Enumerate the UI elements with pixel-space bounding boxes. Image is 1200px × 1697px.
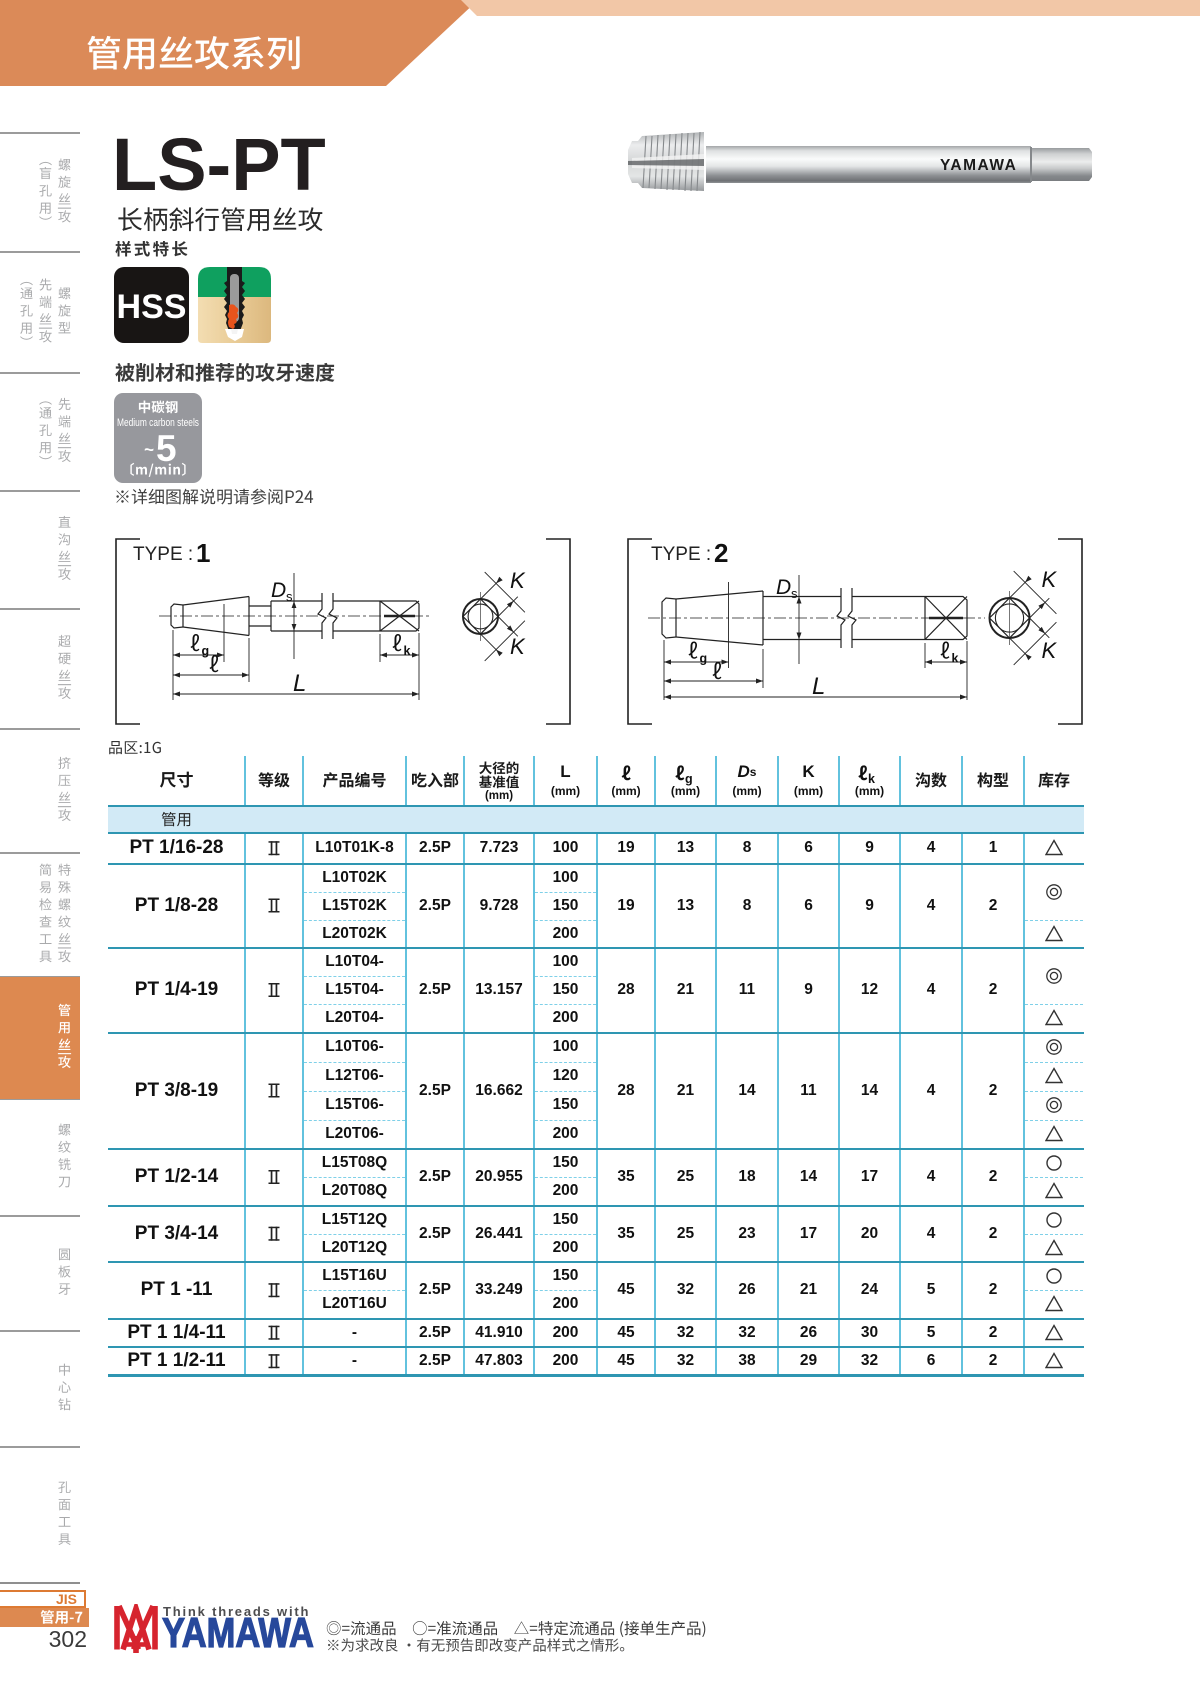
svg-text:k: k [404,644,411,658]
svg-text:g: g [685,772,693,786]
svg-text:k: k [868,772,875,786]
svg-text:g: g [700,652,708,666]
svg-text:g: g [202,644,210,658]
svg-text:k: k [952,652,959,666]
